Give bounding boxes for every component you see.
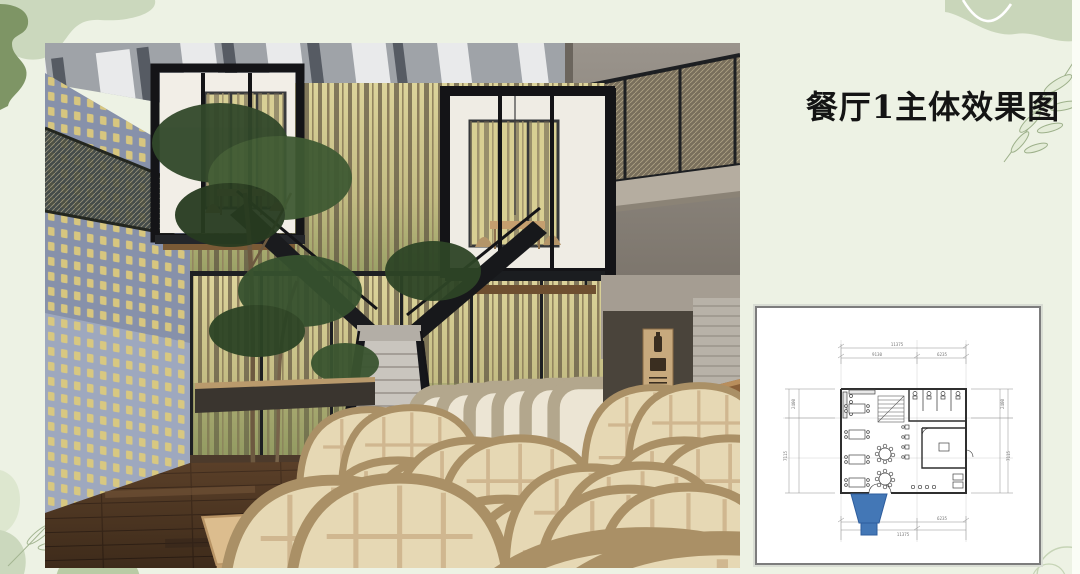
svg-text:2400: 2400 [791, 398, 796, 409]
svg-text:7115: 7115 [1006, 450, 1011, 461]
slide-edge-strip [1072, 0, 1080, 574]
restaurant-render-image [45, 43, 740, 568]
svg-text:2400: 2400 [1000, 398, 1005, 409]
svg-text:9130: 9130 [872, 352, 883, 357]
svg-text:7115: 7115 [783, 450, 788, 461]
plan-axis-lines [783, 340, 1013, 542]
floor-plan-image: 11375 9130 6235 11375 6235 2400 7115 240… [755, 306, 1041, 565]
presentation-slide: 餐厅1主体效果图 11375 9130 6235 11375 6235 [0, 0, 1080, 574]
svg-text:11375: 11375 [891, 342, 904, 347]
slide-title: 餐厅1主体效果图 [792, 82, 1074, 128]
svg-text:6235: 6235 [937, 516, 948, 521]
svg-text:11375: 11375 [897, 532, 910, 537]
plan-stairs [878, 396, 904, 422]
svg-text:6235: 6235 [937, 352, 948, 357]
blob-top-right [945, 0, 1080, 48]
plan-dimension-lines [785, 344, 1013, 540]
plan-entrance-marker [851, 494, 887, 535]
plan-dimension-labels: 11375 9130 6235 11375 6235 2400 7115 240… [783, 342, 1011, 537]
